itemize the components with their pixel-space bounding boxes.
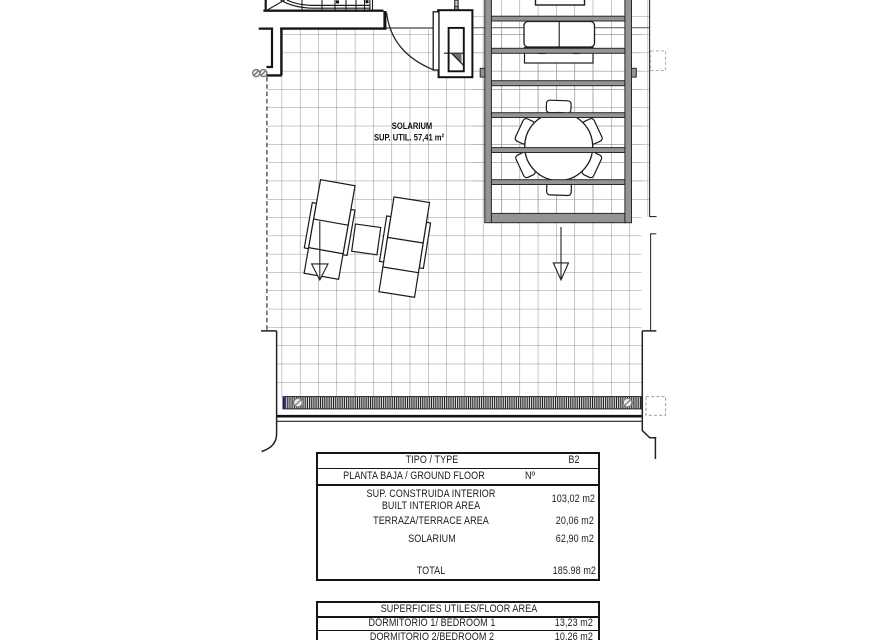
- svg-text:SUP. UTIL. 57,41 m²: SUP. UTIL. 57,41 m²: [374, 132, 444, 142]
- svg-text:SOLARIUM: SOLARIUM: [392, 121, 433, 131]
